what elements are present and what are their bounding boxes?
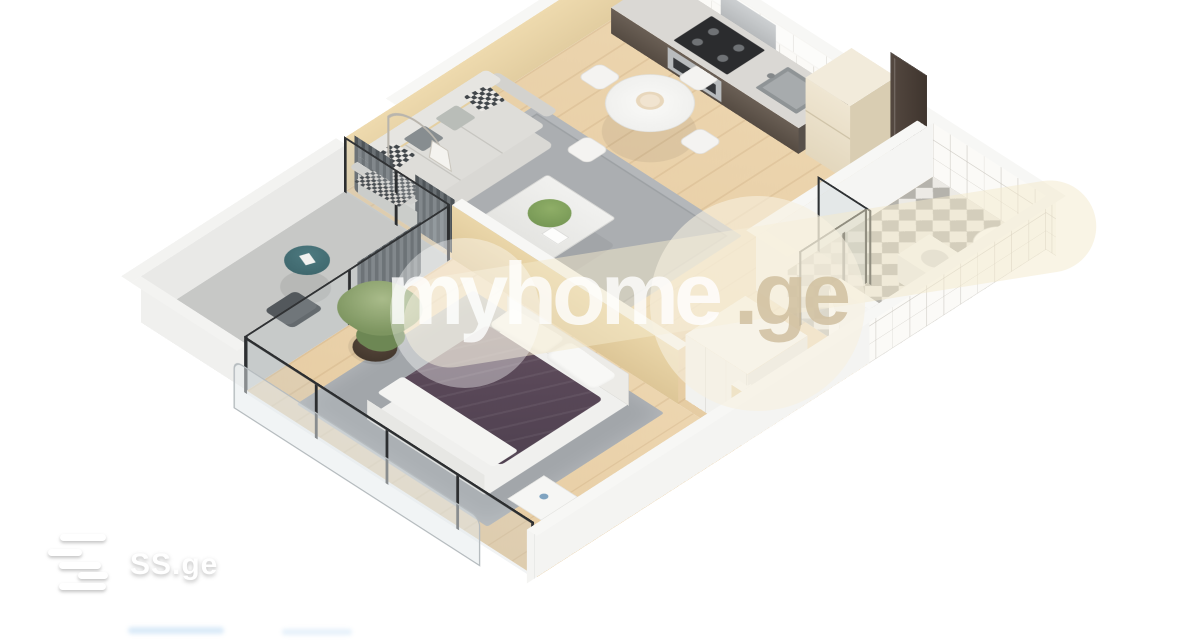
watermark-brand-text: myhome xyxy=(386,250,718,338)
ssge-logo-text: SS.ge xyxy=(130,548,218,582)
bottom-artifact xyxy=(282,629,352,635)
faucet xyxy=(765,72,776,79)
ssge-logo-bar xyxy=(78,572,108,579)
refrigerator-seam xyxy=(806,110,851,140)
ssge-logo-bar xyxy=(59,583,106,590)
watermark-tld-text: .ge xyxy=(734,250,846,338)
ssge-logo: SS.ge xyxy=(46,526,266,606)
ssge-logo-bar xyxy=(48,549,82,556)
glazing-mullion xyxy=(344,138,347,193)
ssge-logo-bar xyxy=(59,562,101,569)
bottom-artifact xyxy=(128,627,224,634)
watermark: myhome .ge xyxy=(386,250,846,338)
nightstand-bottle xyxy=(538,492,551,500)
floorplan-image: myhome .ge SS.ge xyxy=(0,0,1200,640)
ssge-logo-bar xyxy=(60,534,106,541)
magazine xyxy=(299,253,316,265)
